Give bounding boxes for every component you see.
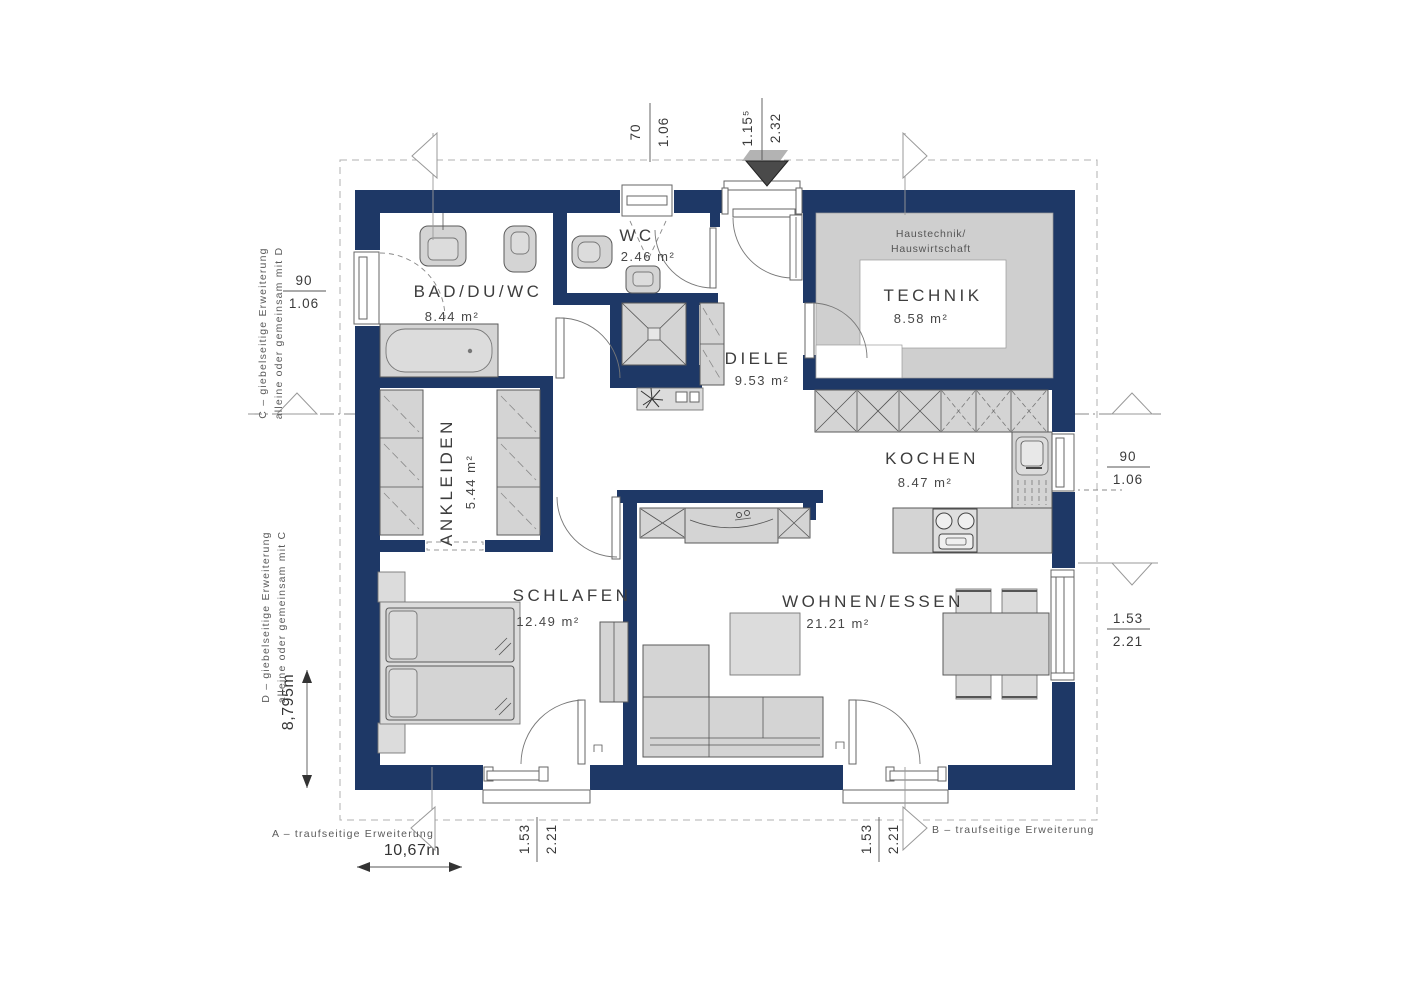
room-area-ankleiden: 5.44 m²: [463, 455, 478, 510]
dim-value: 1.53: [517, 824, 532, 854]
room-label-ankleiden: ANKLEIDEN: [437, 418, 456, 546]
stove-icon: [933, 509, 977, 552]
sink-wc-icon: [626, 266, 660, 293]
label-extension-c1: C – giebelseitige Erweiterung: [257, 247, 269, 418]
room-area-schlafen: 12.49 m²: [516, 614, 579, 629]
dim-wohnen-door: 1.53 2.21: [859, 817, 901, 862]
sink-icon: [420, 213, 466, 266]
marker-triangle-bottom-right: [903, 807, 927, 850]
room-area-technik: 8.58 m²: [894, 311, 949, 326]
nightstand-bottom: [378, 723, 405, 753]
room-label-kochen: KOCHEN: [885, 449, 979, 468]
room-label-wc: WC: [619, 226, 654, 245]
floor-plan: 70 1.06 1.15⁵ 2.32 90 1.06 90 1.06 1.53 …: [0, 0, 1414, 1000]
dim-value: 90: [1119, 449, 1136, 464]
toilet-wc-icon: [572, 236, 612, 268]
dim-value: 70: [628, 123, 643, 140]
kitchen-sink-icon: [1016, 437, 1048, 475]
room-label-bad: BAD/DU/WC: [414, 282, 543, 301]
dim-value: 1.06: [656, 117, 671, 147]
dim-left-window: 90 1.06: [283, 273, 326, 311]
wall-bad-ankleiden: [355, 376, 548, 388]
dim-value: 1.53: [859, 824, 874, 854]
dim-value: 90: [295, 273, 312, 288]
room-area-kochen: 8.47 m²: [898, 475, 953, 490]
technik-note-1: Haustechnik/: [896, 228, 966, 240]
room-label-schlafen: SCHLAFEN: [513, 586, 632, 605]
dim-value: 1.06: [289, 296, 319, 311]
dim-value: 2.21: [886, 824, 901, 854]
wall-technik-kochen: [803, 378, 1075, 390]
wall-ankleiden-bottom-right: [485, 540, 553, 552]
threshold-mark: [836, 742, 844, 749]
room-area-bad: 8.44 m²: [425, 309, 480, 324]
floor-plan-page: 70 1.06 1.15⁵ 2.32 90 1.06 90 1.06 1.53 …: [0, 0, 1414, 1000]
kitchen-wall-cabinets: [815, 390, 1048, 432]
shower-icon: [622, 303, 686, 365]
wall-shower-right: [686, 303, 699, 365]
furniture-kochen: [815, 390, 1052, 553]
dim-right-window: 90 1.06: [1107, 449, 1150, 487]
dim-schlafen-door: 1.53 2.21: [517, 817, 559, 862]
wall-diele-wohnen: [617, 490, 823, 503]
bathtub-icon: [380, 324, 498, 377]
label-extension-c2: alleine oder gemeinsam mit D: [273, 247, 285, 420]
room-label-technik: TECHNIK: [883, 286, 982, 305]
room-area-wohnen: 21.21 m²: [806, 616, 869, 631]
door-schlafen: [557, 497, 620, 559]
coffee-table: [730, 613, 800, 675]
dim-value: 2.21: [1113, 634, 1143, 649]
label-extension-b: B – traufseitige Erweiterung: [932, 824, 1095, 836]
marker-triangle-top-left: [412, 133, 437, 178]
wall-wc-right-stub: [710, 213, 720, 227]
wall-diele-technik-upper: [803, 190, 816, 303]
dim-value: 1.06: [1113, 472, 1143, 487]
dim-top-window: 70 1.06: [628, 103, 671, 162]
dim-right-door: 1.53 2.21: [1107, 611, 1150, 649]
technik-note-2: Hauswirtschaft: [891, 243, 971, 255]
window-wohnen: [1051, 570, 1074, 680]
wall-ankleiden-bottom-left: [378, 540, 425, 552]
closet-diele: [700, 303, 724, 385]
room-label-wohnen: WOHNEN/ESSEN: [782, 592, 964, 611]
room-area-diele: 9.53 m²: [735, 373, 790, 388]
threshold-mark: [594, 745, 602, 752]
wall-bad-wc: [553, 213, 567, 298]
window-kochen: [1051, 434, 1074, 491]
label-extension-d1: D – giebelseitige Erweiterung: [260, 531, 272, 702]
room-label-diele: DIELE: [725, 349, 792, 368]
room-area-wc: 2.46 m²: [621, 249, 676, 264]
dim-value: 2.21: [544, 824, 559, 854]
wall-shower-bottom: [610, 365, 702, 388]
wall-ankleiden-diele: [540, 376, 553, 552]
nightstand-top: [378, 572, 405, 602]
toilet-bad-icon: [504, 226, 536, 272]
dim-value: 2.32: [768, 113, 783, 143]
label-extension-a: A – traufseitige Erweiterung: [272, 828, 434, 840]
desk-diele: [637, 388, 703, 410]
double-bed: [380, 602, 520, 724]
marker-triangle-right-up: [1112, 393, 1152, 414]
marker-triangle-right-down: [1112, 563, 1152, 585]
dim-value: 1.15⁵: [740, 110, 755, 147]
radiator: [790, 215, 802, 280]
wardrobes-ankleiden: [380, 390, 540, 535]
dim-value: 1.53: [1113, 611, 1143, 626]
label-extension-d2: alleine oder gemeinsam mit C: [276, 531, 288, 704]
marker-triangle-top-right: [903, 133, 927, 178]
sideboard: [640, 508, 810, 543]
dim-total-width: 10,67m: [357, 842, 462, 872]
